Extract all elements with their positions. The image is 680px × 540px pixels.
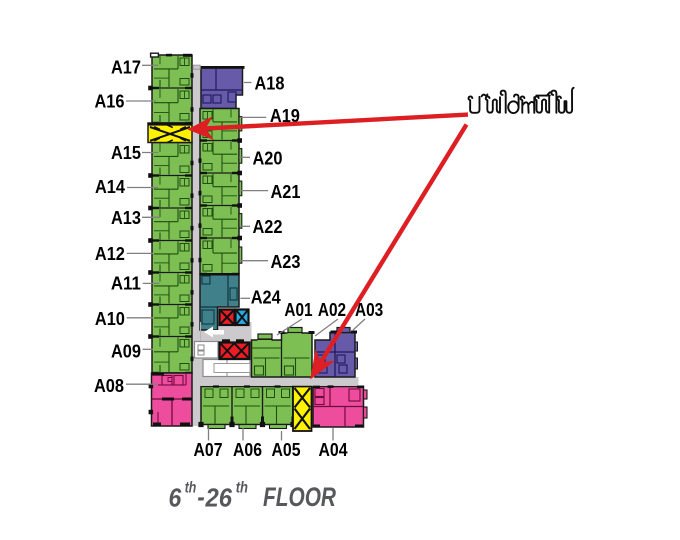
svg-text:A23: A23 — [271, 252, 301, 272]
svg-text:A16: A16 — [95, 92, 125, 112]
svg-text:A15: A15 — [111, 143, 141, 163]
svg-text:6: 6 — [169, 485, 183, 513]
svg-text:A09: A09 — [111, 342, 141, 362]
svg-text:th: th — [185, 480, 197, 497]
svg-text:A18: A18 — [255, 74, 285, 94]
svg-text:A14: A14 — [95, 177, 126, 197]
svg-text:A06: A06 — [233, 439, 262, 460]
svg-text:A08: A08 — [94, 376, 124, 396]
svg-text:A10: A10 — [95, 309, 125, 329]
svg-text:A12: A12 — [95, 244, 125, 264]
svg-text:26: 26 — [205, 485, 233, 513]
svg-text:A05: A05 — [272, 439, 301, 460]
svg-text:A20: A20 — [253, 148, 283, 168]
svg-text:A13: A13 — [111, 208, 141, 228]
svg-text:A11: A11 — [111, 274, 141, 294]
svg-text:-: - — [197, 484, 205, 512]
svg-text:FLOOR: FLOOR — [263, 482, 336, 512]
svg-text:A24: A24 — [251, 287, 282, 307]
svg-text:A22: A22 — [253, 217, 283, 237]
svg-text:A01: A01 — [284, 300, 312, 320]
svg-text:A17: A17 — [111, 58, 141, 78]
svg-text:A02: A02 — [318, 300, 346, 320]
svg-text:A04: A04 — [319, 439, 349, 460]
svg-text:A21: A21 — [271, 182, 301, 202]
svg-text:th: th — [236, 480, 248, 497]
svg-text:A07: A07 — [194, 439, 223, 460]
